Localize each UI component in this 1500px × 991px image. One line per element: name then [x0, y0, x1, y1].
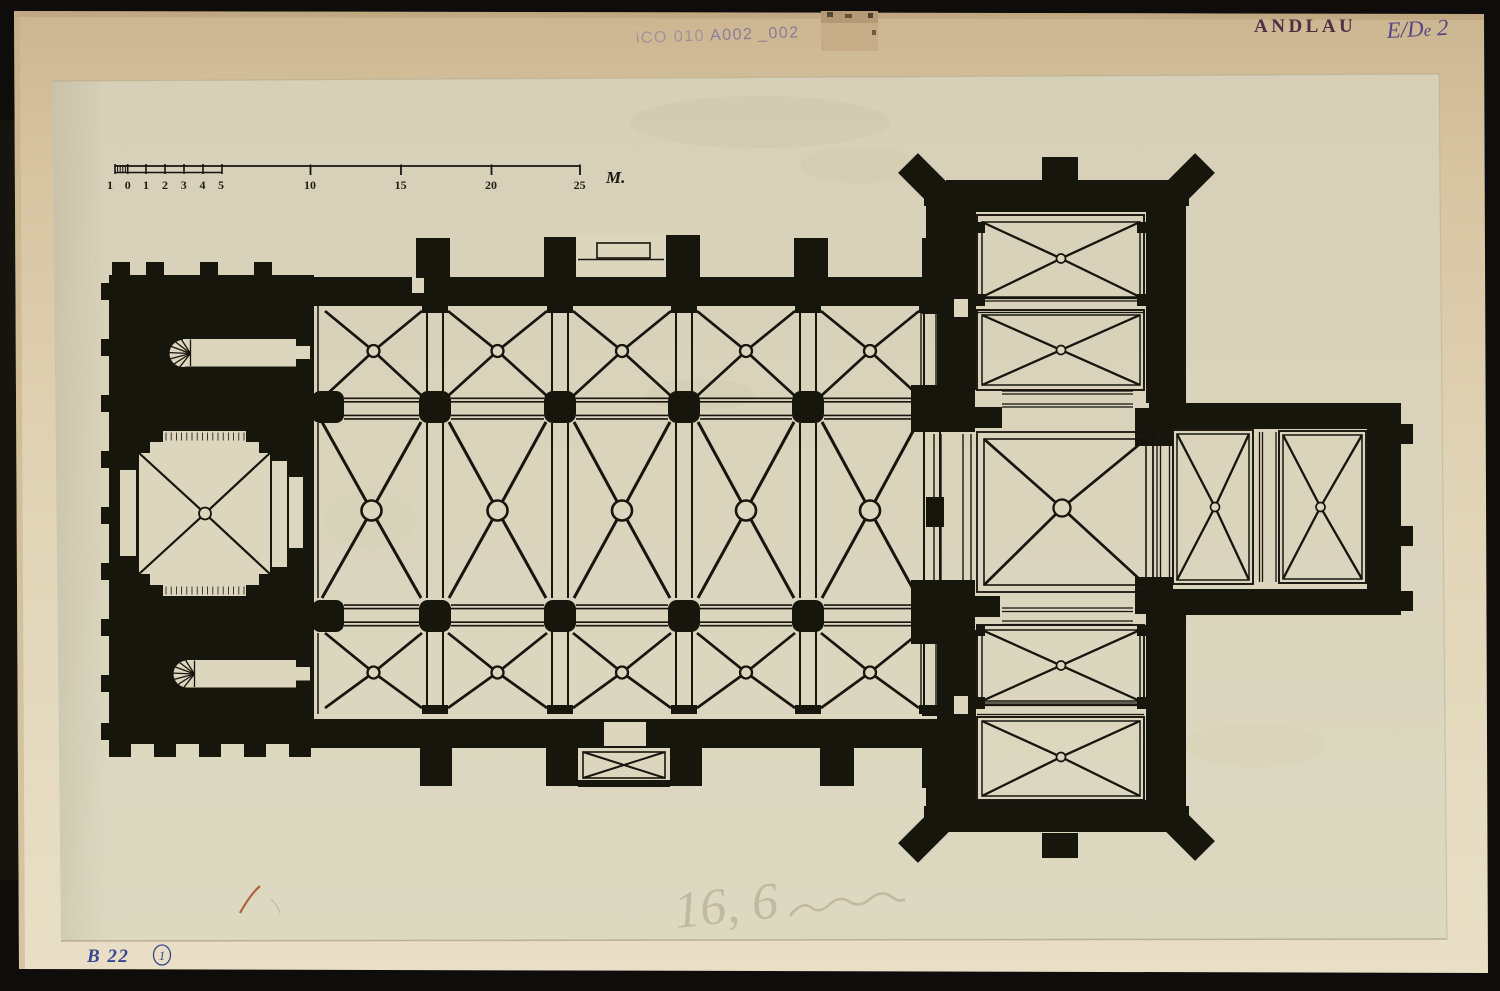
svg-text:3: 3 [181, 178, 187, 192]
svg-text:5: 5 [218, 178, 224, 192]
svg-text:16, 6: 16, 6 [671, 872, 780, 940]
svg-text:1: 1 [107, 178, 113, 192]
svg-text:25: 25 [574, 178, 586, 192]
svg-text:20: 20 [485, 178, 497, 192]
svg-text:0: 0 [125, 178, 131, 192]
svg-text:2: 2 [162, 178, 168, 192]
svg-text:15: 15 [395, 178, 407, 192]
svg-text:M.: M. [605, 168, 625, 187]
svg-text:10: 10 [304, 178, 316, 192]
svg-text:B 22: B 22 [86, 946, 129, 967]
svg-text:E/De 2: E/De 2 [1385, 15, 1449, 43]
svg-text:1: 1 [159, 948, 166, 963]
svg-text:1: 1 [143, 178, 149, 192]
svg-text:ANDLAU: ANDLAU [1254, 16, 1356, 37]
svg-text:4: 4 [200, 178, 206, 192]
